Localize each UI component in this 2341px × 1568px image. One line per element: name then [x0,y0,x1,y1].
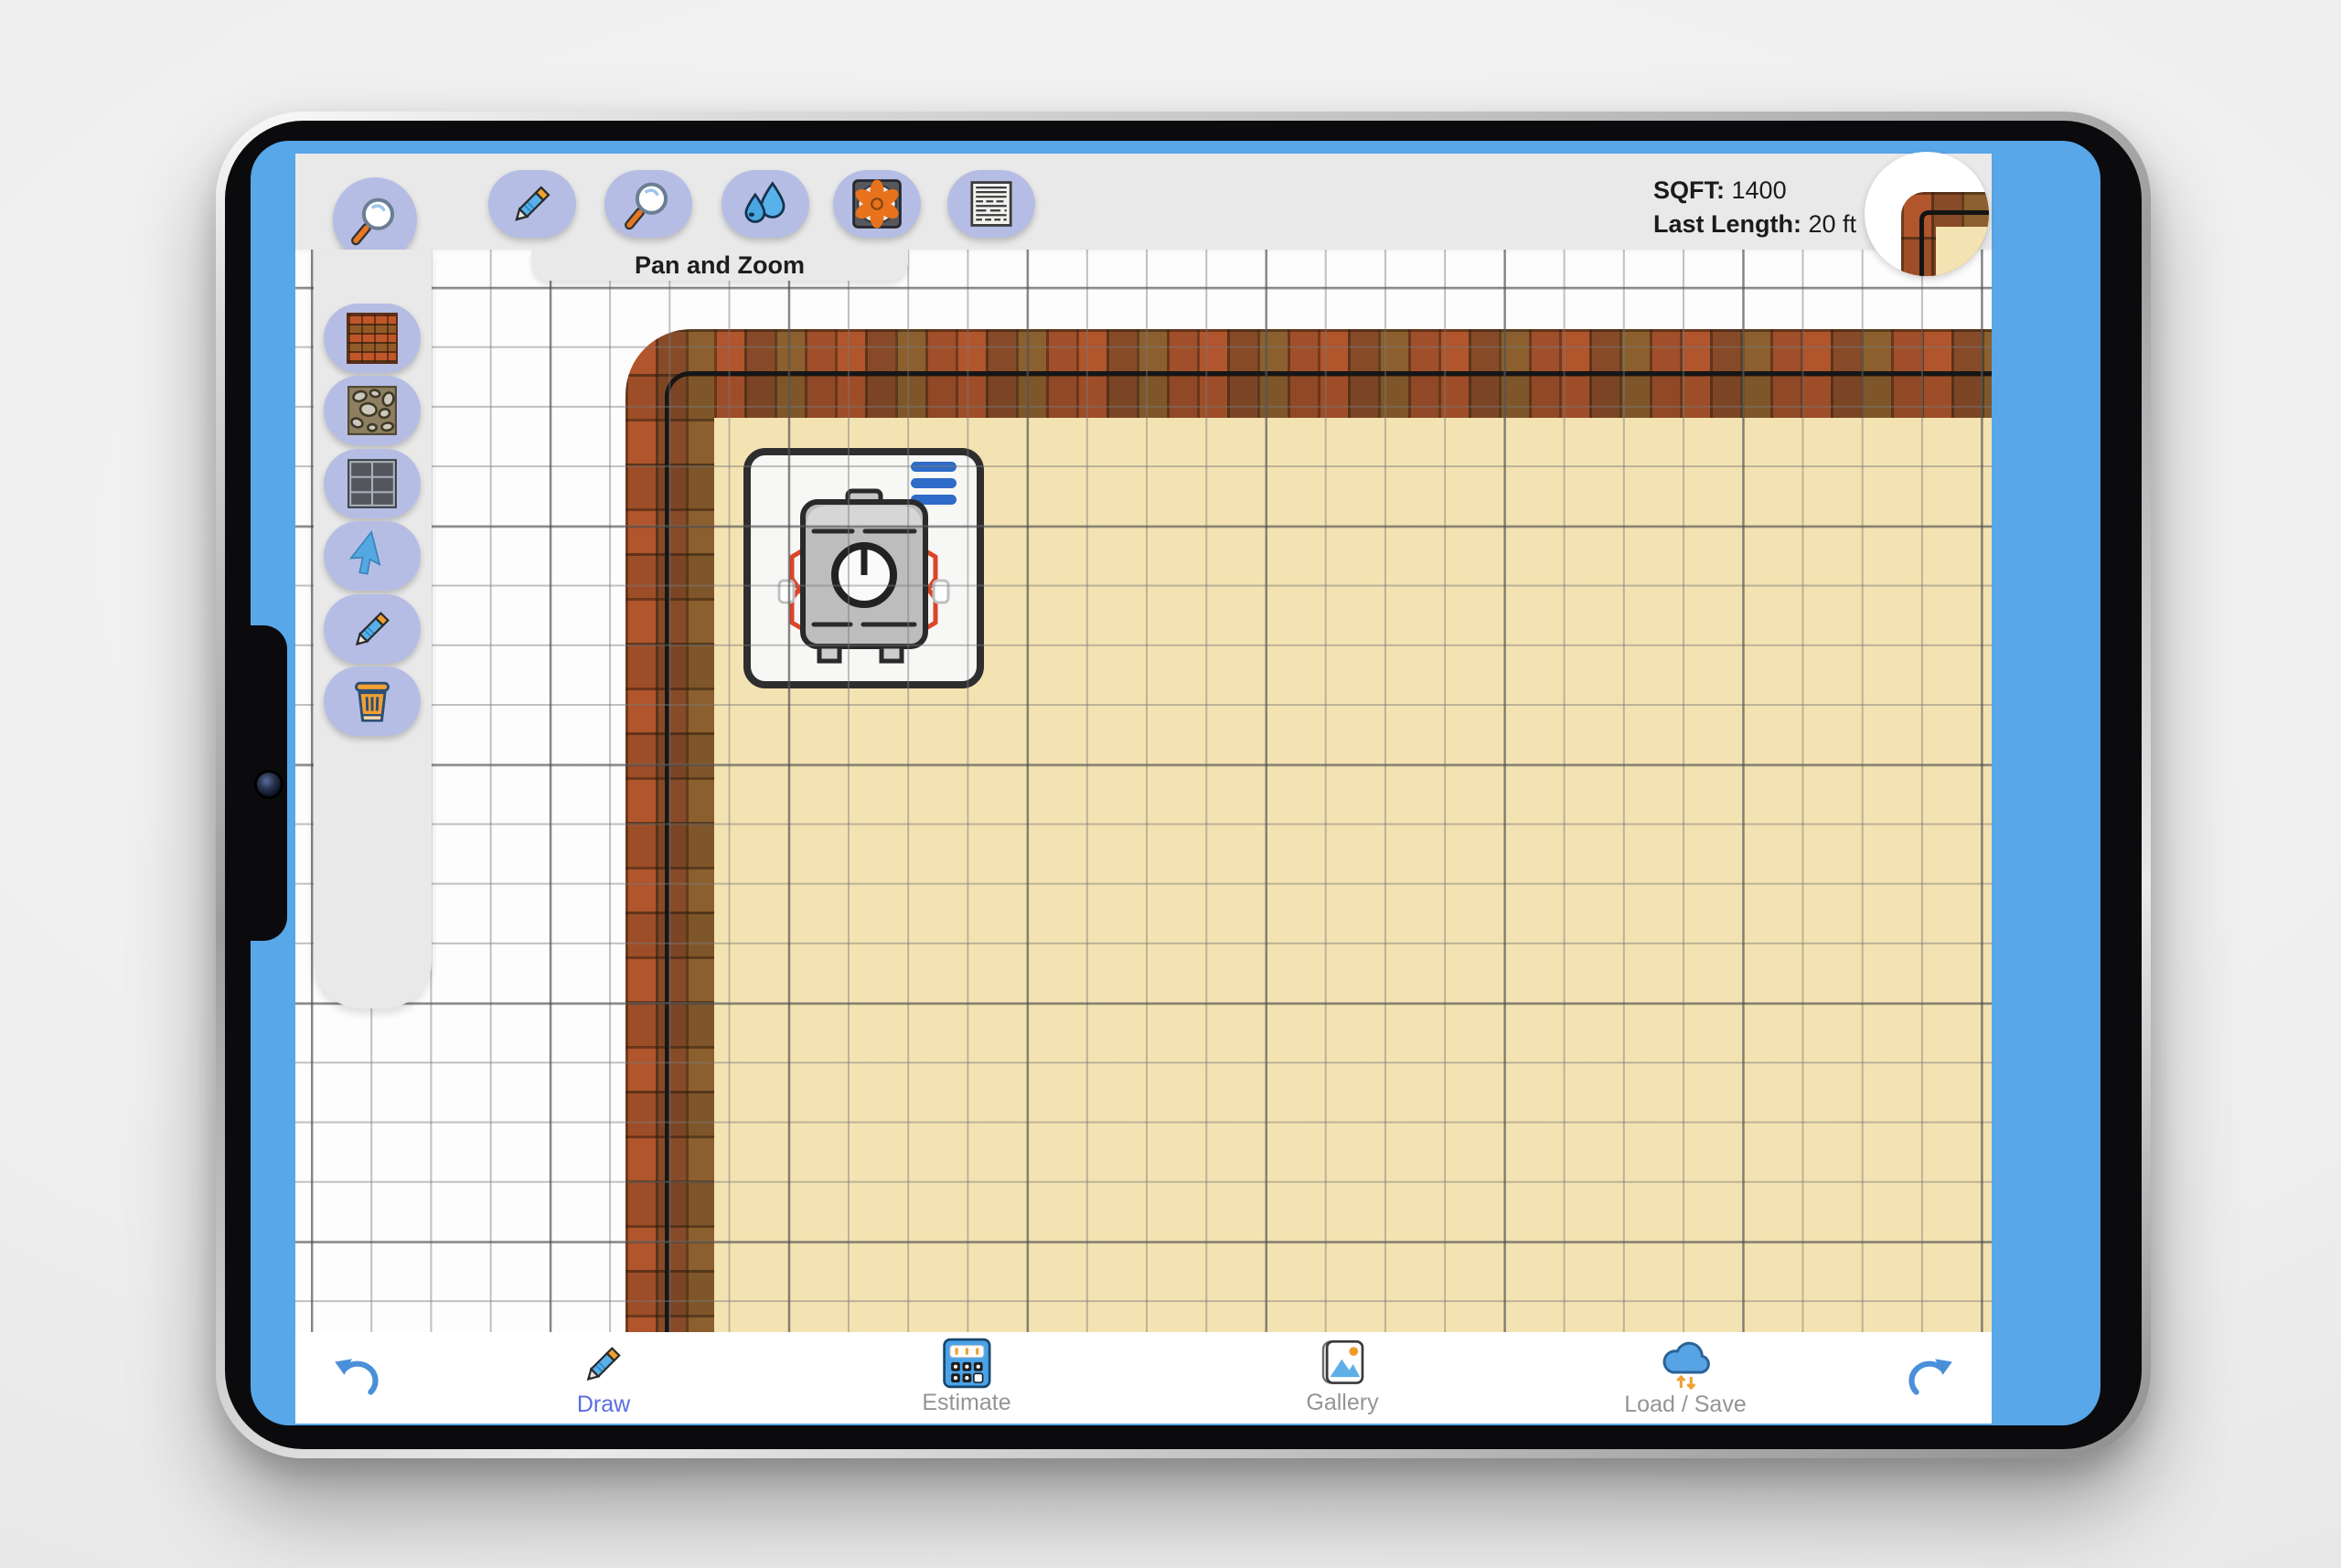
front-camera-icon [254,770,283,799]
draw-wall-tool-button[interactable] [488,170,576,238]
page: SQFT: 1400 Last Length: 20 ft Pan and Zo… [0,0,2341,1568]
select-tool-button[interactable] [324,521,421,591]
gallery-icon [1317,1338,1368,1389]
pencil-tool-button[interactable] [324,594,421,664]
stone-material-button[interactable] [324,376,421,445]
water-tool-button[interactable] [722,170,809,238]
sqft-readout: SQFT: 1400 [1653,174,1856,208]
material-sidebar [314,250,432,1008]
redo-arrow-icon [1901,1350,1958,1403]
tab-load-save-label: Load / Save [1624,1392,1746,1418]
pencil-icon [346,603,399,656]
minimap-thumbnail [1865,152,1989,276]
last-length-readout: Last Length: 20 ft [1653,208,1856,241]
tab-draw[interactable]: Draw [577,1338,630,1418]
paver-material-button[interactable] [324,449,421,518]
magnifier-icon [621,176,676,231]
sqft-label: SQFT: [1653,176,1725,204]
last-length-label: Last Length: [1653,210,1801,238]
active-tool-label: Pan and Zoom [635,251,805,280]
pencil-icon [577,1338,630,1391]
tab-estimate-label: Estimate [922,1390,1010,1416]
bottom-toolbar: Draw [295,1332,1992,1424]
paver-grid-icon [346,457,399,510]
stone-icon [346,384,399,437]
tab-load-save[interactable]: Load / Save [1624,1338,1746,1418]
delete-tool-button[interactable] [324,667,421,736]
pencil-icon [505,176,560,231]
undo-button[interactable] [329,1350,386,1403]
brick-material-button[interactable] [324,304,421,373]
brick-icon [347,313,398,364]
material-tool-button[interactable] [947,170,1035,238]
active-tool-tab: Pan and Zoom [531,250,908,281]
undo-arrow-icon [329,1350,386,1403]
tab-gallery-label: Gallery [1306,1390,1378,1416]
trash-icon [347,676,398,727]
redo-button[interactable] [1901,1350,1958,1403]
magnifier-icon [347,192,402,247]
camera-housing [251,625,287,941]
tablet-frame: SQFT: 1400 Last Length: 20 ft Pan and Zo… [216,112,2151,1458]
tablet-bezel: SQFT: 1400 Last Length: 20 ft Pan and Zo… [225,121,2142,1449]
sqft-value: 1400 [1732,176,1787,204]
water-heater-item[interactable] [743,447,985,689]
tab-draw-label: Draw [577,1392,630,1418]
tab-gallery[interactable]: Gallery [1306,1338,1378,1416]
cursor-icon [347,530,398,581]
menu-bars-icon[interactable] [911,462,957,505]
calculator-icon [941,1338,992,1389]
app-screen: SQFT: 1400 Last Length: 20 ft Pan and Zo… [251,141,2100,1425]
water-heater-icon [743,447,985,689]
floorplan-canvas[interactable] [295,154,1992,1332]
cloud-icon [1656,1338,1715,1391]
app-content: SQFT: 1400 Last Length: 20 ft Pan and Zo… [295,154,1992,1424]
fan-icon [850,176,904,231]
plan-stats: SQFT: 1400 Last Length: 20 ft [1653,174,1856,241]
vent-tool-button[interactable] [833,170,921,238]
last-length-value: 20 ft [1809,210,1857,238]
tab-estimate[interactable]: Estimate [922,1338,1010,1416]
lined-panel-icon [965,177,1018,230]
minimap-floor [1936,227,1989,276]
pan-zoom-tool-button[interactable] [604,170,692,238]
water-drops-icon [739,177,792,230]
